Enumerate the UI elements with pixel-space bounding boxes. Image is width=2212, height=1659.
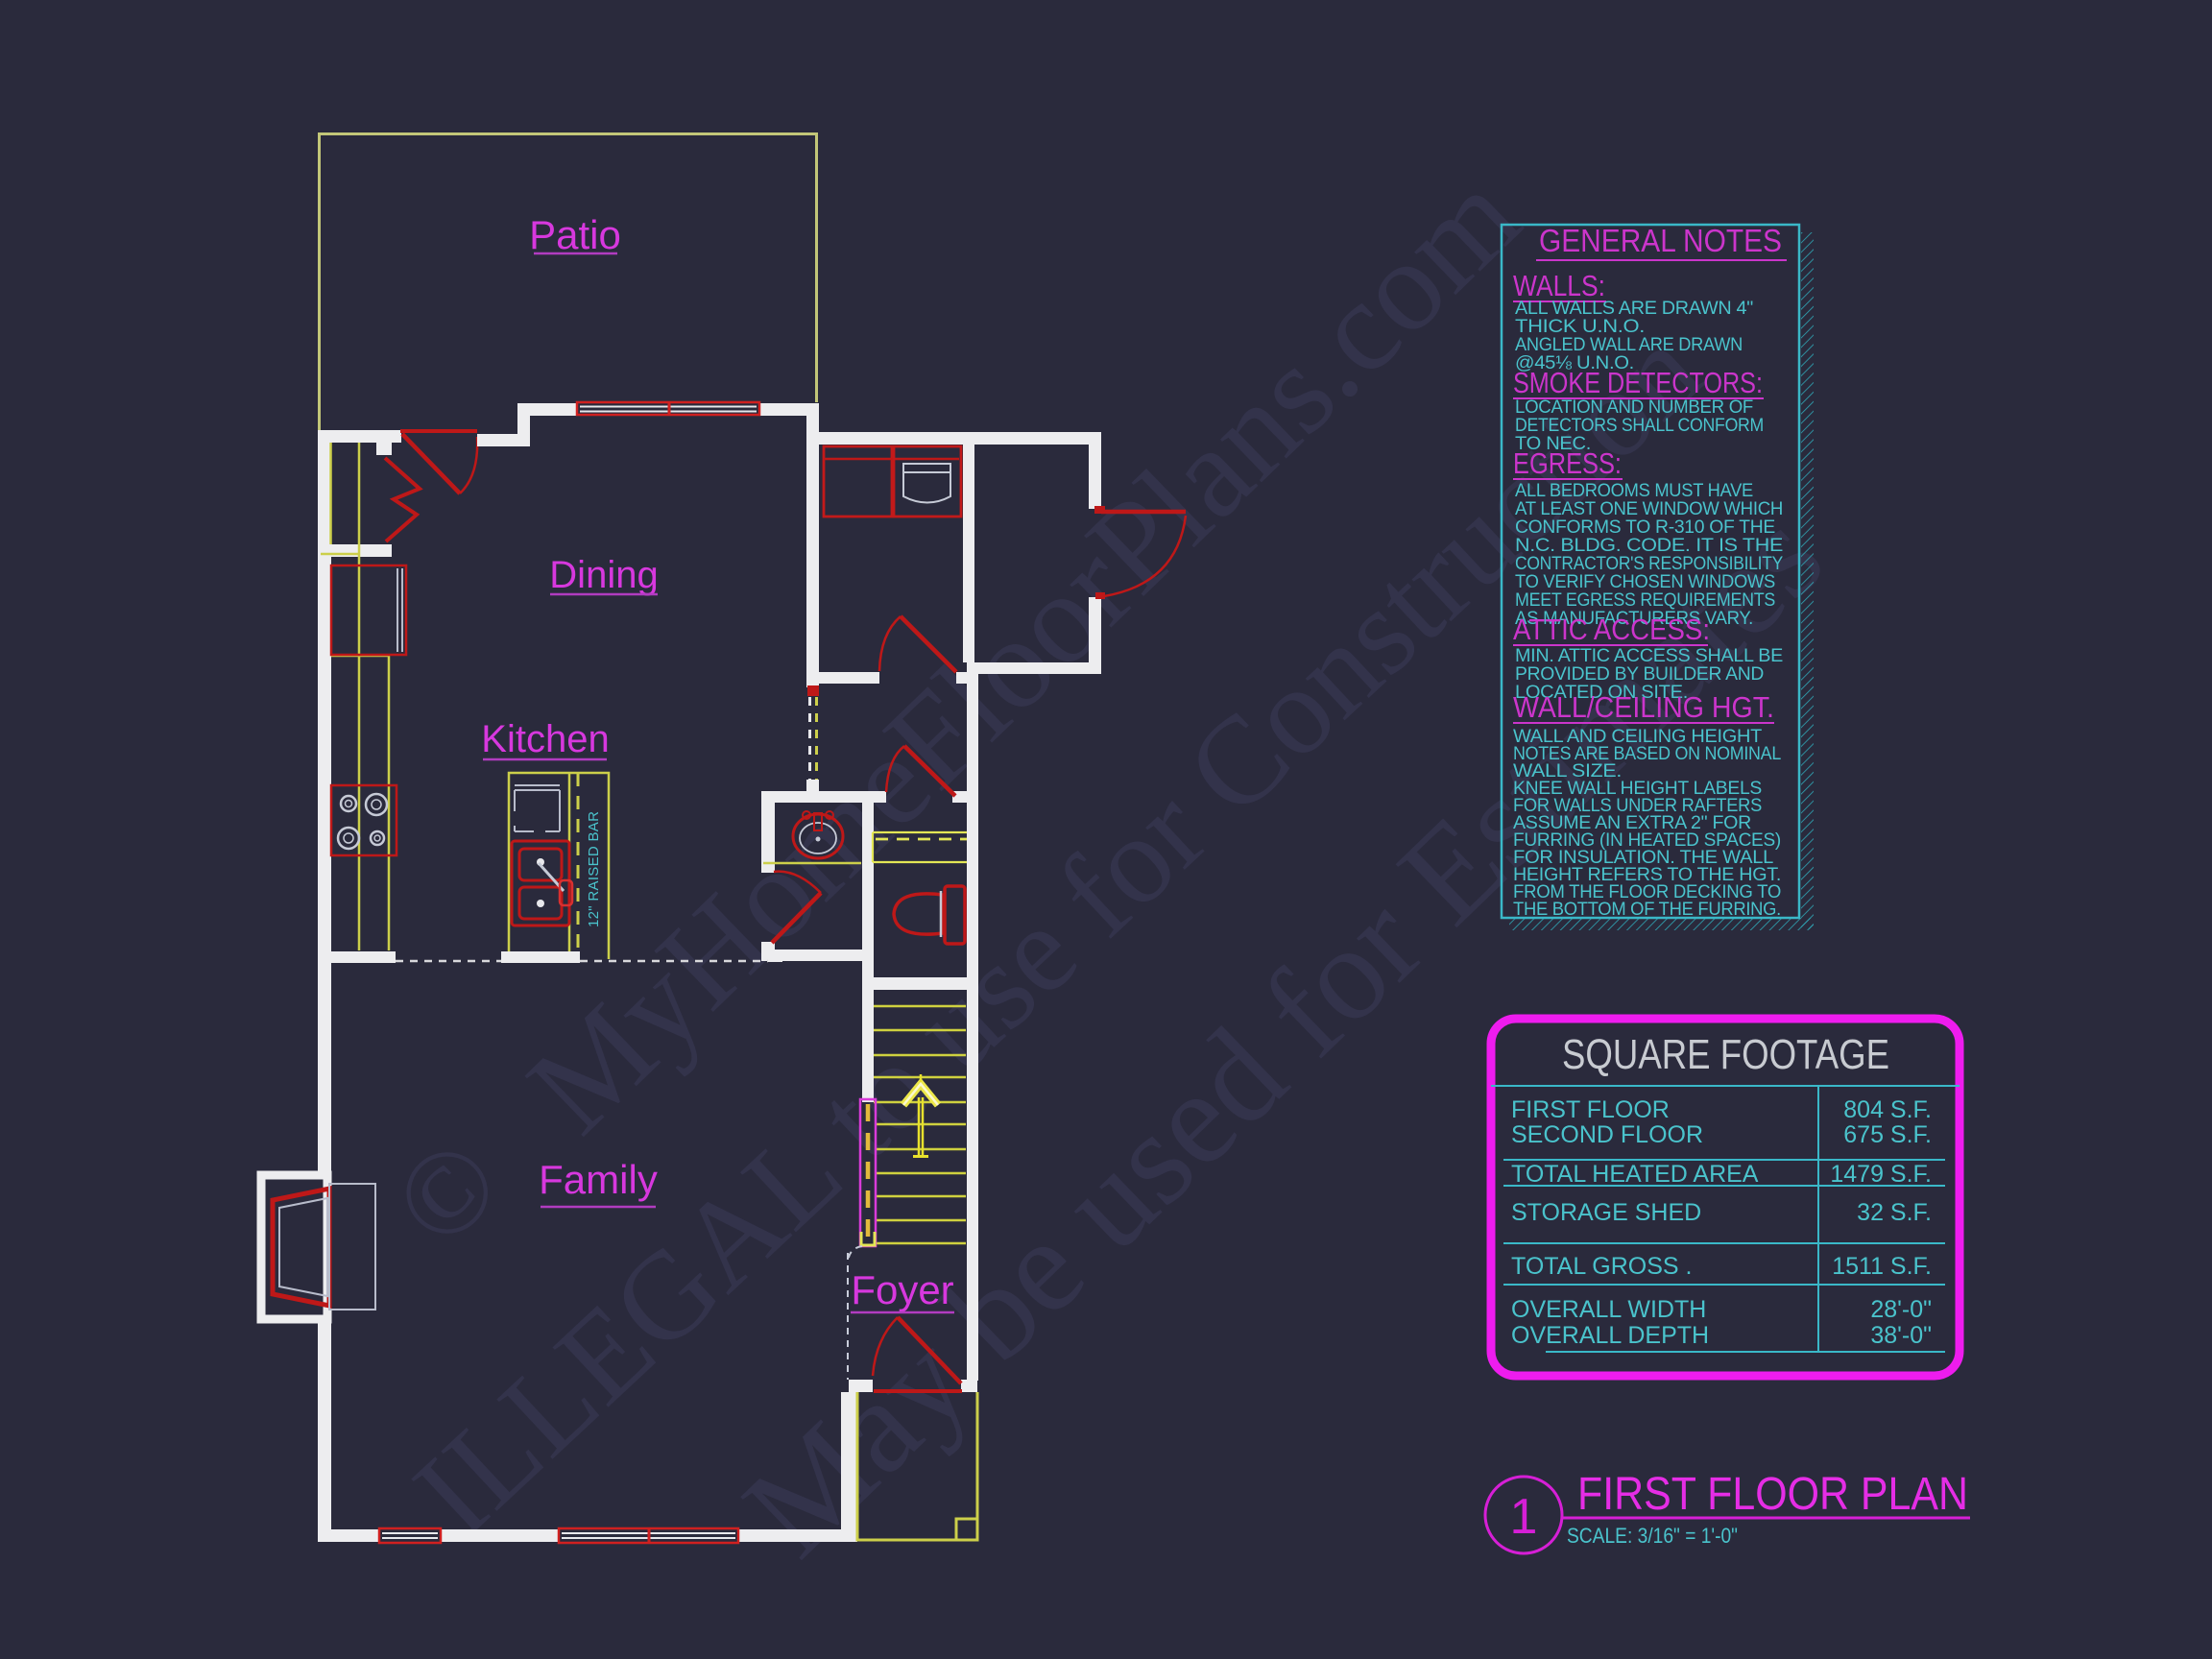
svg-text:TOTAL HEATED AREA: TOTAL HEATED AREA <box>1511 1161 1759 1188</box>
svg-text:Kitchen: Kitchen <box>481 718 609 760</box>
svg-text:FIRST FLOOR PLAN: FIRST FLOOR PLAN <box>1577 1469 1968 1520</box>
svg-text:ATTIC ACCESS:: ATTIC ACCESS: <box>1513 613 1710 646</box>
svg-text:SMOKE DETECTORS:: SMOKE DETECTORS: <box>1513 366 1763 399</box>
svg-text:Dining: Dining <box>549 554 658 596</box>
svg-text:EGRESS:: EGRESS: <box>1513 446 1622 480</box>
svg-text:Patio: Patio <box>529 212 621 257</box>
svg-text:28'-0": 28'-0" <box>1870 1296 1932 1323</box>
svg-text:FIRST FLOOR: FIRST FLOOR <box>1511 1096 1670 1123</box>
svg-text:SCALE: 3/16" = 1'-0": SCALE: 3/16" = 1'-0" <box>1567 1524 1738 1548</box>
svg-text:THE BOTTOM OF THE FURRING.: THE BOTTOM OF THE FURRING. <box>1513 899 1781 920</box>
svg-text:SQUARE FOOTAGE: SQUARE FOOTAGE <box>1562 1031 1889 1078</box>
svg-text:675 S.F.: 675 S.F. <box>1843 1121 1932 1148</box>
svg-text:32 S.F.: 32 S.F. <box>1857 1199 1932 1226</box>
svg-text:STORAGE SHED: STORAGE SHED <box>1511 1199 1701 1226</box>
svg-text:12" RAISED BAR: 12" RAISED BAR <box>586 811 602 927</box>
svg-text:1479 S.F.: 1479 S.F. <box>1830 1161 1932 1188</box>
svg-text:TOTAL GROSS .: TOTAL GROSS . <box>1511 1253 1692 1280</box>
svg-text:Foyer: Foyer <box>851 1267 953 1312</box>
svg-text:Family: Family <box>539 1157 658 1202</box>
svg-text:1: 1 <box>1510 1489 1538 1545</box>
svg-text:SECOND FLOOR: SECOND FLOOR <box>1511 1121 1703 1148</box>
svg-text:GENERAL NOTES: GENERAL NOTES <box>1539 223 1782 258</box>
svg-text:OVERALL WIDTH: OVERALL WIDTH <box>1511 1296 1706 1323</box>
svg-text:1511 S.F.: 1511 S.F. <box>1832 1253 1932 1280</box>
svg-text:OVERALL DEPTH: OVERALL DEPTH <box>1511 1322 1709 1349</box>
svg-text:804 S.F.: 804 S.F. <box>1843 1096 1932 1123</box>
svg-text:38'-0": 38'-0" <box>1870 1322 1932 1349</box>
svg-text:WALL/CEILING HGT.: WALL/CEILING HGT. <box>1513 690 1774 724</box>
